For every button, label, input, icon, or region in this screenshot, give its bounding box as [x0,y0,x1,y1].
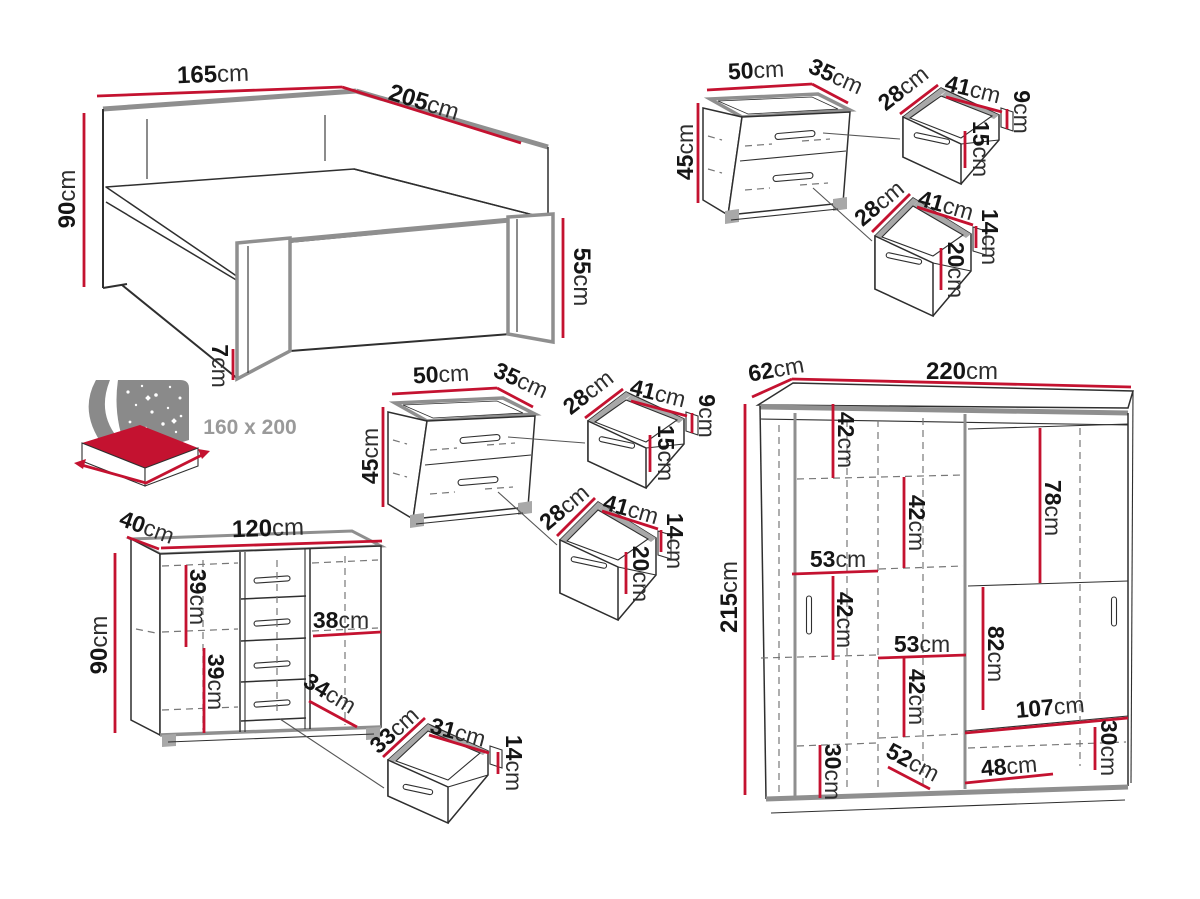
bed-drawing: 165cm 205cm 90cm 55cm 7cm [54,60,595,388]
bed-base-label: 7cm [207,344,233,387]
wardrobe-bottom-left-label: 30cm [820,744,846,800]
furniture-dimensions-diagram: 165cm 205cm 90cm 55cm 7cm 160 x 200 [0,0,1200,899]
nightstand-width-dim-line [707,84,812,90]
nightstand-bottom-drawer: 28cm 41cm 14cm 20cm [849,175,1003,316]
wardrobe-left-shelf-label: 53cm [810,546,866,572]
mattress-size-label: 160 x 200 [203,416,296,439]
top-drawer-front-label: 15cm [968,121,994,177]
wardrobe-left-mid-label: 42cm [832,592,858,648]
wardrobe-left-top-label: 42cm [833,412,859,468]
bottom-drawer-front-label: 20cm [943,242,969,298]
wardrobe-center-top-label: 42cm [904,495,930,551]
chest-upper-left-label: 39cm [185,569,211,625]
nightstand-2 [357,357,720,620]
bottom-drawer-side-label: 14cm [977,209,1003,265]
wardrobe-height-label: 215cm [716,561,743,633]
chest-drawer-height-label: 14cm [501,735,527,791]
nightstand-height-label: 45cm [672,124,698,180]
wardrobe-width-label: 220cm [926,358,998,385]
bed-front-right-leg [508,214,553,342]
wardrobe-center-hanging-label: 82cm [983,626,1009,682]
chest-height-label: 90cm [86,616,113,675]
chest-lower-left-label: 39cm [203,654,229,710]
wardrobe-right-door-handle [1112,597,1117,626]
wardrobe-drawing: 62cm 220cm 215cm 42cm 42cm 78cm 53cm 42c… [716,351,1133,813]
chest-door-shelf-label: 38cm [313,607,369,633]
wardrobe-bottom-right-label: 30cm [1096,720,1122,776]
mattress-icon: 160 x 200 [74,380,297,486]
wardrobe-right-hanging-label: 78cm [1040,480,1066,536]
wardrobe-left-door-handle [807,596,812,634]
wardrobe-center-shelf-label: 53cm [894,631,950,657]
chest-width-label: 120cm [232,514,305,543]
nightstand-width-label: 50cm [727,56,785,85]
furniture-dimension-sheet: 165cm 205cm 90cm 55cm 7cm 160 x 200 [0,0,1200,899]
nightstand-1: 50cm 35cm 45cm 28cm 41cm 9cm 15cm [672,53,1035,316]
bed-height-label: 90cm [54,170,81,229]
nightstand-depth-label: 35cm [805,53,867,100]
top-drawer-side-label: 9cm [1009,90,1035,133]
wardrobe-depth-label: 62cm [746,351,806,386]
wardrobe-floor-width-label: 48cm [980,751,1038,782]
bed-width-label: 165cm [177,60,250,89]
bed-front-left-leg [237,238,290,379]
nightstand-top-drawer: 28cm 41cm 9cm 15cm [873,60,1035,184]
wardrobe-center-mid-label: 42cm [904,669,930,725]
bed-footboard-label: 55cm [568,248,595,307]
chest-drawing: 40cm 120cm 90cm 39cm 39cm 38cm 34cm 33cm… [86,505,527,823]
chest-drawer: 33cm 31cm 14cm [364,702,527,823]
